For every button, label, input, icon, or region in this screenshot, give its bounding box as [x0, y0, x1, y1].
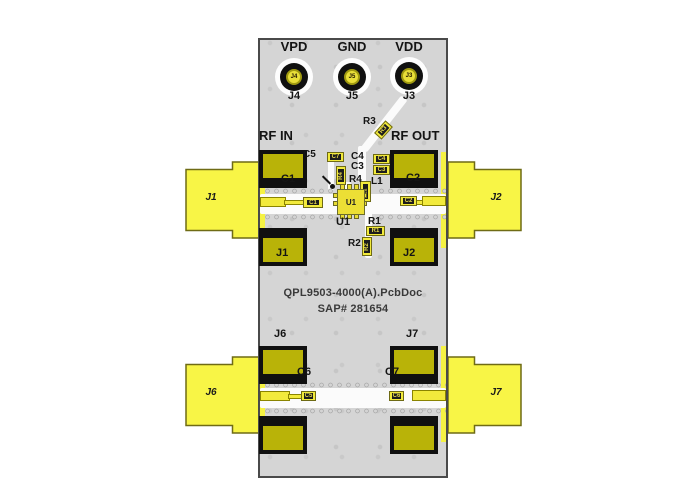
- component-c4: C4: [373, 154, 390, 164]
- via-row: [376, 212, 446, 220]
- silk-l1: L1: [371, 176, 383, 187]
- silk-j5: J5: [323, 90, 381, 102]
- component-c5: C7: [327, 152, 344, 162]
- silk-j6: J6: [274, 328, 286, 340]
- pcb-layout-image: J1 J2 J6 J7 C1: [0, 0, 700, 500]
- board-doc-title: QPL9503-4000(A).PcbDoc: [258, 287, 448, 299]
- connector-j1-label: J1: [189, 192, 233, 203]
- silk-r3: R3: [363, 116, 376, 127]
- silk-r1: R1: [368, 216, 381, 227]
- component-c7-marking: C6: [393, 393, 401, 398]
- board-sap-number: SAP# 281654: [258, 303, 448, 315]
- component-c3: C3: [373, 165, 390, 175]
- component-r2: R2: [362, 237, 372, 256]
- component-c1-marking: C1: [309, 200, 317, 206]
- silk-c7: C7: [385, 366, 399, 378]
- silk-u1: U1: [336, 216, 350, 228]
- component-c6-marking: C5: [305, 393, 313, 398]
- component-r2-marking: R2: [364, 243, 369, 251]
- connector-j7-label: J7: [474, 387, 518, 398]
- silk-c6: C6: [297, 366, 311, 378]
- silk-j7: J7: [406, 328, 418, 340]
- component-c4-marking: C4: [378, 156, 386, 161]
- test-point-ring: J3: [395, 62, 423, 90]
- test-point-ring: J4: [280, 63, 308, 91]
- test-point-pad: J3: [401, 68, 417, 84]
- silk-r4: R4: [349, 174, 362, 185]
- silk-r2: R2: [348, 238, 361, 249]
- silk-c3: C3: [351, 161, 364, 172]
- silk-j3: J3: [380, 90, 438, 102]
- label-vpd: VPD: [265, 40, 323, 54]
- connector-j2-label: J2: [474, 192, 518, 203]
- silk-j2: J2: [403, 247, 415, 259]
- component-c3-marking: C3: [378, 167, 386, 172]
- rf-pin-right-top: [422, 196, 446, 206]
- component-c2-marking: C2: [405, 198, 413, 203]
- gnd-pad: [259, 416, 307, 454]
- rf-pin-right-bottom: [412, 390, 446, 401]
- component-c1: C1: [303, 197, 323, 208]
- rf-pin-left-top: [260, 197, 286, 207]
- label-rf-out: RF OUT: [391, 129, 439, 143]
- component-r3-marking: R3: [379, 125, 389, 135]
- trace-segment: [288, 394, 302, 399]
- component-r1: R1: [366, 226, 385, 236]
- silk-j4: J4: [265, 90, 323, 102]
- label-rf-in: RF IN: [259, 129, 293, 143]
- label-vdd: VDD: [380, 40, 438, 54]
- test-point-ring: J5: [338, 63, 366, 91]
- silk-j1: J1: [276, 247, 288, 259]
- component-c5-marking: C7: [332, 154, 340, 159]
- component-r4-marking: R4: [338, 172, 343, 180]
- rf-pin-left-bottom: [260, 391, 290, 401]
- component-c6: C5: [301, 391, 316, 401]
- silk-c1: C1: [281, 173, 295, 185]
- gnd-pad: [390, 416, 438, 454]
- silk-c2: C2: [406, 172, 420, 184]
- trace-segment: [284, 200, 304, 205]
- via-row: [262, 406, 446, 414]
- test-point-pad: J4: [286, 69, 302, 85]
- label-gnd: GND: [323, 40, 381, 54]
- component-c2: C2: [400, 196, 417, 206]
- component-c7: C6: [389, 391, 404, 401]
- component-u1: U1: [337, 189, 365, 215]
- gnd-pad: [259, 346, 307, 384]
- component-r1-marking: R1: [372, 228, 380, 233]
- pin1-dot: [330, 184, 335, 189]
- test-point-pad: J5: [344, 69, 360, 85]
- component-r4: R4: [336, 166, 346, 185]
- gnd-pad: [390, 346, 438, 384]
- via-row: [262, 212, 334, 220]
- connector-j6-label: J6: [189, 387, 233, 398]
- silk-c5: C5: [303, 149, 316, 160]
